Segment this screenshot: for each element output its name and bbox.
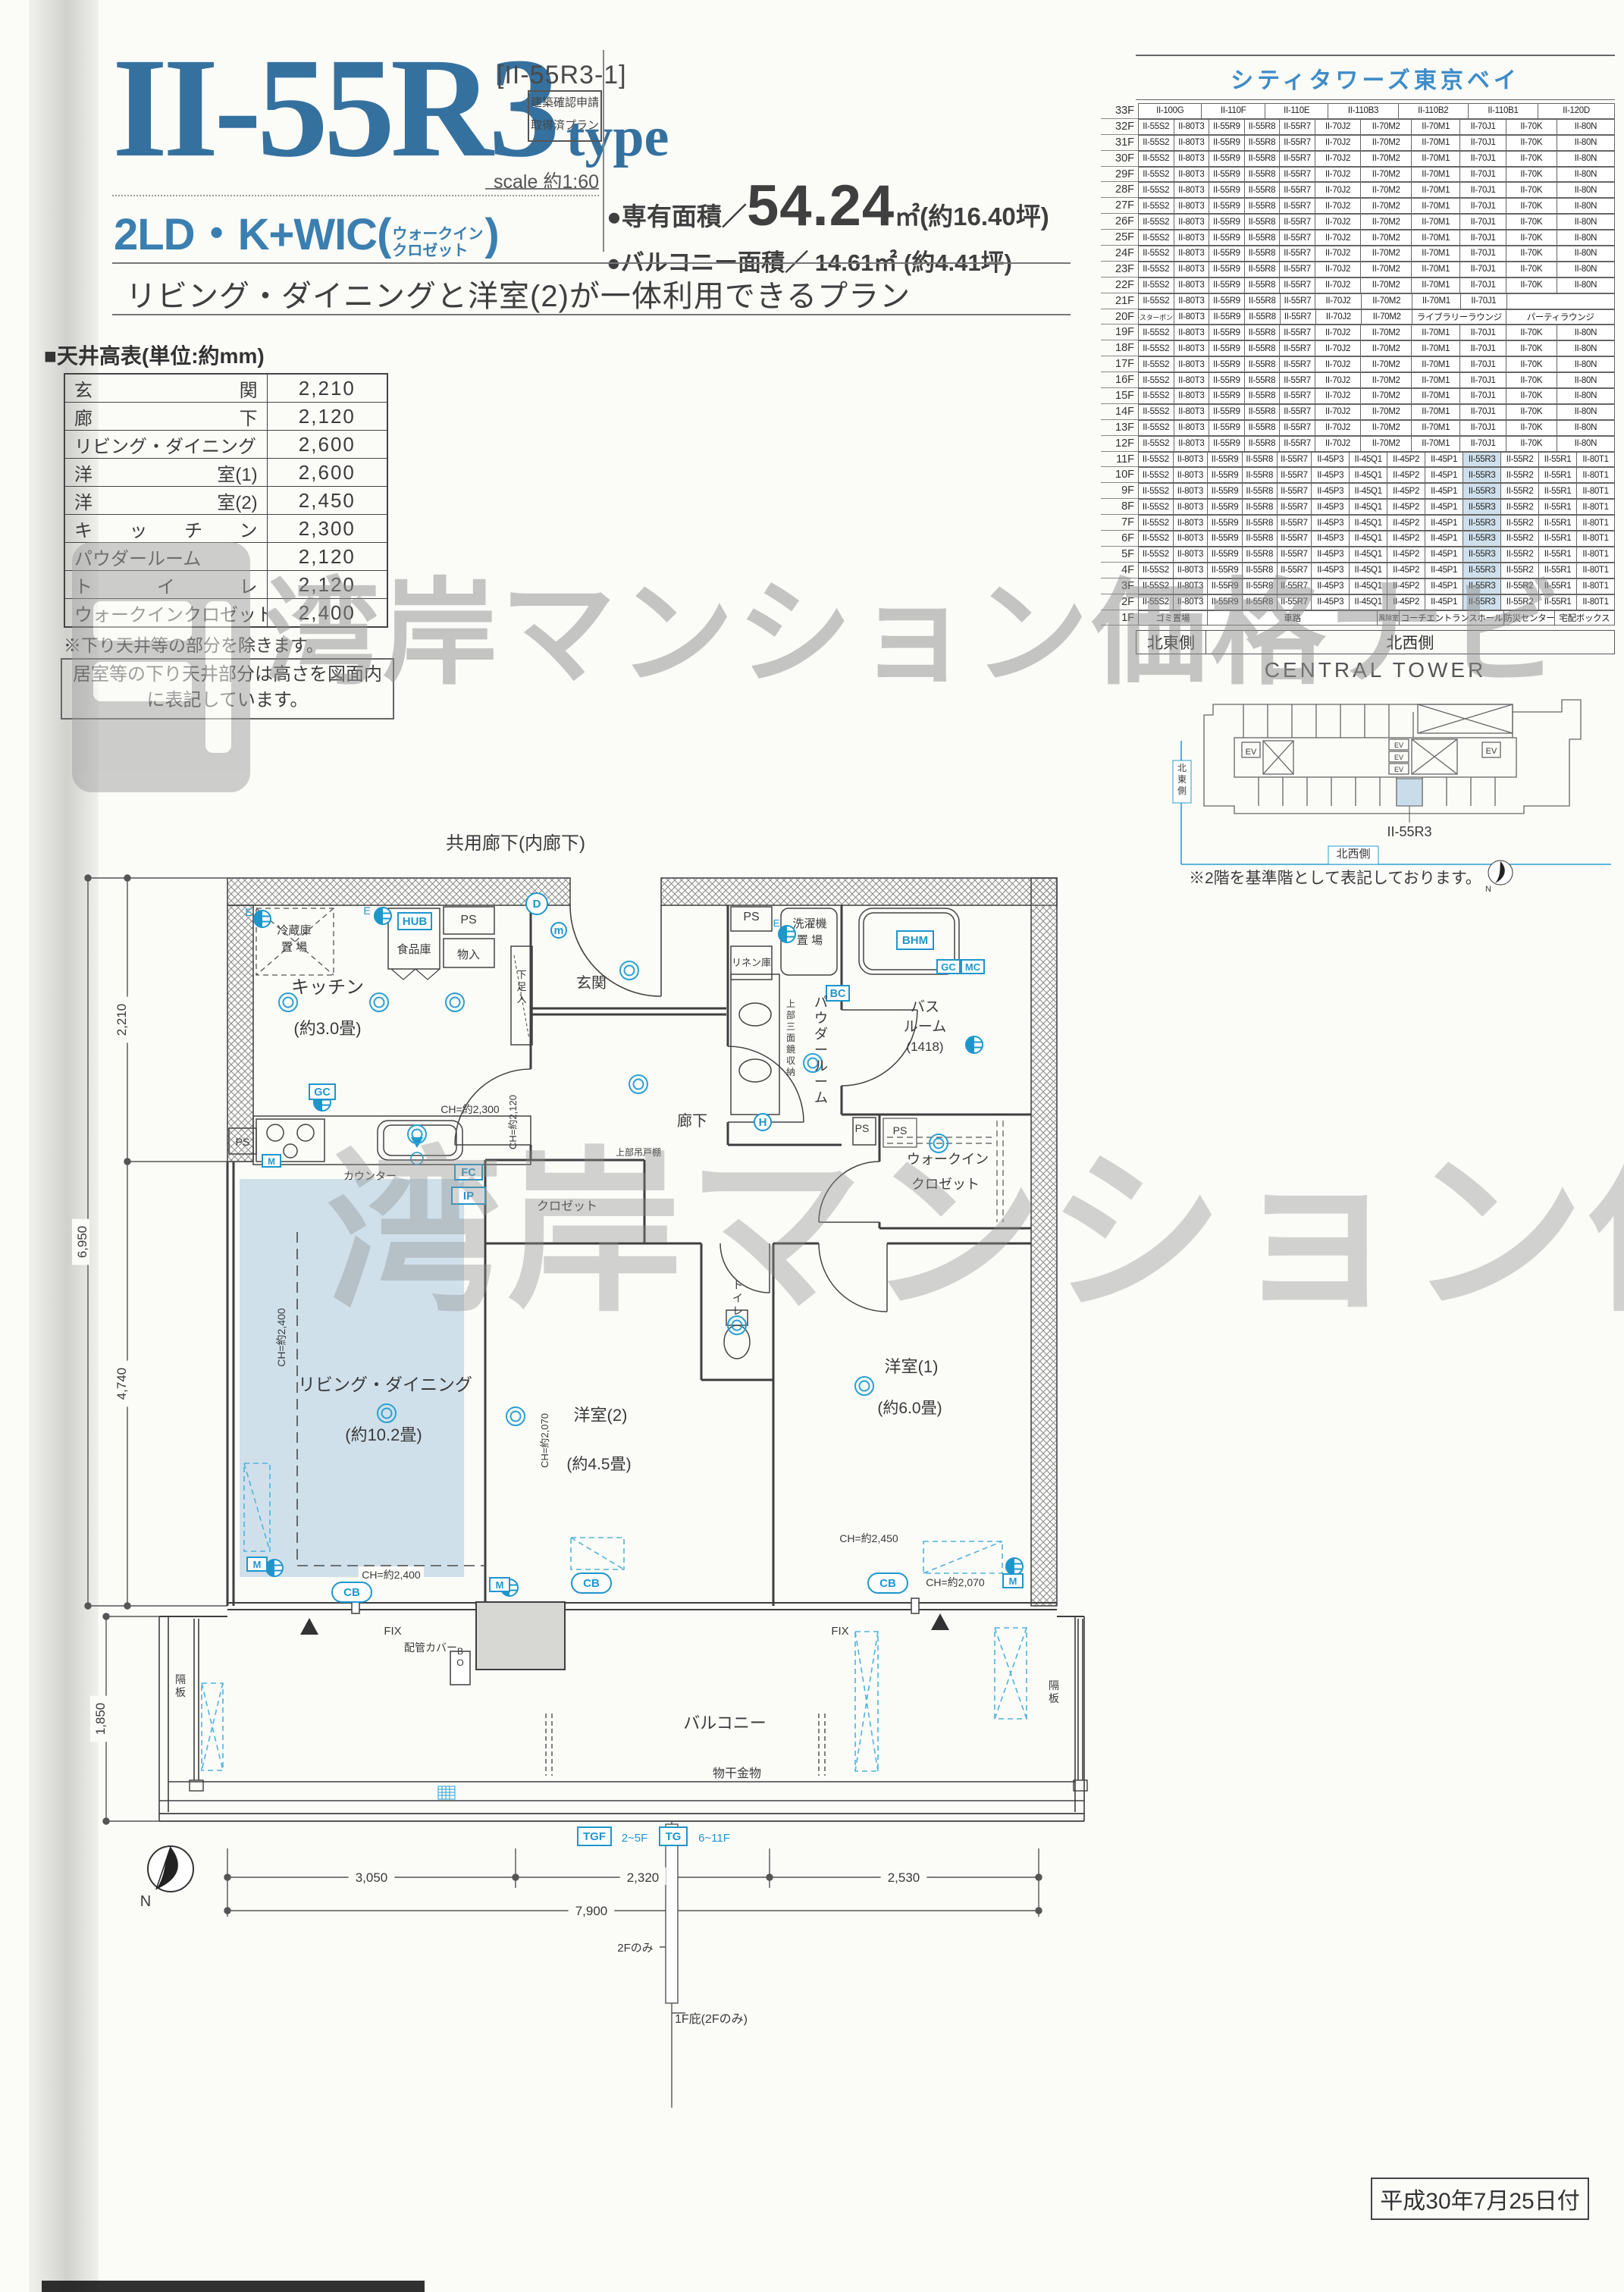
tower-cell: II-55R9 [1209,135,1245,151]
floor-label: 22F [1101,277,1138,293]
tower-cell: II-45P2 [1387,452,1425,468]
tower-cell: II-55R7 [1277,467,1312,483]
tower-cell: II-70J2 [1315,230,1361,246]
tower-cell: II-70J1 [1459,372,1506,388]
room-layout-label: 2LD・K+WIC(ウォークインクロゼット) [114,199,499,262]
tower-cell: II-70J1 [1459,214,1506,230]
tower-cell: II-55R9 [1209,309,1245,325]
tower-cell: II-80N [1557,119,1615,135]
tower-cell: II-80T1 [1576,515,1615,531]
tower-cell: II-70M2 [1360,388,1412,404]
tower-cell: II-55R1 [1538,499,1577,515]
tower-cell: II-70J2 [1315,356,1361,372]
tower-cell: II-55R7 [1280,293,1316,309]
tower-cell: II-110B1 [1468,103,1538,119]
plan-badge-bhm: BHM [902,934,928,947]
plan-label: 板 [1049,1692,1059,1704]
plan-label: 足 [516,981,526,992]
floor-label: 29F [1101,167,1138,183]
tower-cell: II-55R7 [1279,151,1315,167]
compass-icon [148,1846,193,1892]
tower-cell: II-70M2 [1360,151,1412,167]
tower-cell: II-55R8 [1244,293,1281,309]
plan-label: (1418) [906,1039,943,1054]
plan-label: リビング・ダイニング [298,1375,472,1394]
tower-cell: II-55R3 [1463,499,1501,515]
tower-cell: II-70M1 [1412,293,1461,309]
tower-row: 13FII-55S2II-80T3II-55R9II-55R8II-55R7II… [1101,420,1615,436]
tower-cell: II-55S2 [1138,182,1174,198]
tower-cell: II-55R7 [1279,388,1315,404]
tower-cell: II-45P3 [1311,452,1350,468]
tower-cell: II-55R7 [1279,214,1315,230]
tower-cell: II-55R9 [1207,452,1243,468]
floor-label: 20F [1101,309,1138,325]
tower-cell: II-55R7 [1277,499,1312,515]
tower-cell: II-55R8 [1244,325,1281,340]
plan-label: 側 [1177,785,1187,796]
dotted-divider [112,195,599,196]
scan-bottom-strip [42,2281,425,2292]
tower-cell: II-70M2 [1360,277,1412,293]
plan-label: バス [911,999,939,1015]
tower-cell: II-70J2 [1315,151,1361,167]
tower-cell: II-80T3 [1174,356,1210,372]
tower-cell: II-80N [1557,388,1615,404]
plan-label: (約10.2畳) [345,1425,422,1444]
tower-cell: II-55R9 [1209,340,1245,356]
tower-cell: II-55S2 [1138,246,1174,262]
floor-label: 15F [1101,388,1138,404]
tower-cell: II-45P2 [1387,467,1425,483]
tower-cell: II-70J1 [1459,325,1506,340]
building-key-plan: EVEVEVEVEVII-55R3北西側北東側※2階を基準階として表記しておりま… [1168,694,1622,898]
plan-badge-m: m [554,925,564,937]
plan-code: [II-55R3-1] [497,61,627,90]
plan-label: 北西側 [1336,848,1370,861]
tower-cell: II-45P3 [1311,515,1350,531]
ceiling-row: 玄関2,210 [65,375,387,402]
plan-label: パ [814,995,828,1010]
plan-label: CH=約2,450 [839,1532,898,1544]
tower-cell: II-70J2 [1315,135,1361,151]
area-label: ●専有面積／ [607,202,747,230]
tower-cell: II-80N [1557,246,1615,262]
plan-label: 冷蔵庫 [277,924,311,937]
scanned-floor-plan-page: II-55R3type [II-55R3-1] 建築確認申請 取得済プラン sc… [0,0,1624,2292]
plan-label: CH=約2,400 [362,1569,421,1581]
tower-cell: II-45P3 [1311,483,1350,499]
tower-cell: II-55R7 [1279,277,1315,293]
tower-cell: II-55R1 [1538,452,1577,468]
tower-cell: II-80N [1557,325,1615,340]
plan-badge-m: M [253,1559,262,1570]
tower-cell: II-80T3 [1174,293,1210,309]
highlighted-unit-location [1397,779,1422,806]
tower-row: 7FII-55S2II-80T3II-55R9II-55R8II-55R7II-… [1101,515,1615,531]
tower-cell [1506,293,1615,309]
tower-cell: II-70M2 [1360,198,1412,214]
tower-cell: II-70K [1506,230,1557,246]
tower-cell: II-55R7 [1280,309,1316,325]
tower-cell: II-55R7 [1279,167,1315,183]
tower-cell: II-55R9 [1209,230,1245,246]
tower-cell: II-70M1 [1411,388,1460,404]
tower-cell: II-55R8 [1244,372,1281,388]
tower-cell: II-55R8 [1244,420,1281,436]
tower-cell: II-80T3 [1174,388,1210,404]
tower-cell: II-55R8 [1242,515,1278,531]
tower-cell: II-70M1 [1411,356,1460,372]
plan-badge-tgf: TGF [583,1830,606,1843]
tower-cell: II-70M2 [1360,167,1412,183]
watermark-logo [72,542,250,792]
tower-cell: II-45P1 [1425,499,1463,515]
tower-row: 33FII-100GII-110FII-110EII-110B3II-110B2… [1101,103,1615,119]
floor-plan-drawing: DmHHUBGCGCMCBCBHMFCIPMMMMCBCBCBTGFTG 共用廊… [61,819,1168,2138]
plan-label: 東 [1177,774,1187,785]
tower-row: 15FII-55S2II-80T3II-55R9II-55R8II-55R7II… [1101,388,1615,404]
plan-label: 配管カバー [404,1641,457,1654]
tower-cell: II-55R9 [1207,467,1243,483]
tower-cell: II-55S2 [1138,135,1174,151]
tower-cell: II-70J2 [1315,214,1361,230]
floor-label: 7F [1101,515,1138,531]
tower-cell: II-100G [1138,103,1202,119]
tower-cell: II-70M1 [1411,372,1460,388]
tower-cell: II-70J2 [1315,309,1362,325]
tower-cell: II-70K [1506,388,1557,404]
plan-label: 3,050 [356,1870,388,1885]
tower-cell: II-45Q1 [1349,499,1387,515]
tower-cell: II-80T1 [1576,452,1615,468]
tower-cell: II-70M2 [1360,325,1412,340]
tower-cell: II-80T3 [1173,452,1209,468]
tower-cell: II-80T1 [1576,531,1615,547]
tower-cell: II-55R8 [1244,277,1281,293]
tower-cell: II-80N [1557,230,1615,246]
ceiling-table-title: ■天井高表(単位:約mm) [44,340,265,370]
floor-label: 12F [1101,436,1138,452]
tower-cell: II-55R7 [1279,340,1315,356]
area-unit: ㎡(約16.40坪) [895,202,1049,230]
tower-cell: II-55S2 [1138,214,1174,230]
tower-cell: II-80N [1557,135,1615,151]
tower-cell: II-80T3 [1174,436,1210,452]
tower-cell: II-55R8 [1244,404,1281,420]
tower-cell: II-55R7 [1279,182,1315,198]
tower-cell: II-80T3 [1174,420,1210,436]
ceiling-row: リビング・ダイニング2,600 [65,430,387,458]
tower-cell: II-80T3 [1173,483,1209,499]
tower-cell: II-80T3 [1174,167,1210,183]
tower-cell: II-70K [1506,151,1557,167]
tower-cell: II-70M2 [1360,372,1412,388]
tower-cell: II-45P1 [1425,515,1463,531]
tower-row: 23FII-55S2II-80T3II-55R9II-55R8II-55R7II… [1101,262,1615,277]
plan-label: 2,320 [627,1870,660,1885]
tower-cell: II-55S2 [1138,467,1174,483]
tower-cell: II-70M1 [1411,119,1460,135]
tower-cell: II-55R7 [1277,452,1312,468]
tower-cell: II-70J2 [1315,246,1361,262]
tower-cell: II-55R8 [1244,356,1281,372]
plan-label: バルコニー [683,1714,767,1732]
tower-cell: II-45P2 [1387,515,1425,531]
floor-label: 19F [1101,325,1138,340]
plan-label: 隔 [1049,1679,1059,1692]
plan-label: EV [1394,766,1403,773]
tower-cell: II-70J1 [1459,262,1506,277]
tower-cell: II-70M2 [1361,309,1412,325]
tower-cell: II-70J1 [1459,230,1506,246]
tower-cell: II-80T3 [1174,246,1210,262]
tower-cell: II-70M1 [1411,182,1460,198]
tower-cell: II-55R7 [1279,436,1315,452]
tower-cell: II-55R8 [1244,388,1281,404]
tower-cell: II-70M1 [1411,340,1460,356]
plan-badge-gc: GC [941,961,955,973]
tower-cell: II-45Q1 [1349,467,1387,483]
tower-cell: II-70J1 [1460,293,1507,309]
tower-row: 12FII-55S2II-80T3II-55R9II-55R8II-55R7II… [1101,436,1615,452]
floor-label: 26F [1101,214,1138,230]
plan-label: ル [814,1058,828,1074]
plan-label: (約3.0畳) [293,1019,361,1038]
tower-cell: II-55R2 [1500,483,1539,499]
tower-cell: II-55R8 [1242,452,1278,468]
plan-label: 北 [1177,763,1187,773]
tower-cell: II-80N [1557,277,1615,293]
tower-row: 22FII-55S2II-80T3II-55R9II-55R8II-55R7II… [1101,277,1615,293]
tower-cell: II-55R7 [1279,198,1315,214]
plan-badge-cb: CB [343,1586,360,1599]
tower-cell: II-55R9 [1209,151,1245,167]
tower-cell: II-55R9 [1209,388,1245,404]
tower-cell: II-70K [1506,262,1557,277]
tower-cell: II-70J2 [1315,262,1361,277]
tower-cell: II-55S2 [1138,230,1174,246]
tower-cell: II-80N [1557,404,1615,420]
tower-row: 28FII-55S2II-80T3II-55R9II-55R8II-55R7II… [1101,182,1615,198]
tower-cell: II-70K [1506,404,1557,420]
tower-cell: II-80N [1557,420,1615,436]
tower-cell: II-70J1 [1459,404,1506,420]
tower-cell: II-70M1 [1411,277,1460,293]
tower-cell: II-55R7 [1279,119,1315,135]
tower-row: 32FII-55S2II-80T3II-55R9II-55R8II-55R7II… [1101,119,1615,135]
plan-label: ※2階を基準階として表記しております。 [1189,870,1481,887]
tower-cell: II-55R8 [1242,483,1278,499]
plan-label: FIX [384,1625,401,1638]
plan-label: 玄関 [576,974,607,992]
tower-row: 18FII-55S2II-80T3II-55R9II-55R8II-55R7II… [1101,340,1615,356]
tower-cell: II-55R3 [1463,483,1501,499]
tower-cell: II-55R2 [1500,515,1539,531]
tower-cell: II-55R9 [1209,119,1245,135]
plan-label: 納 [786,1067,795,1077]
plan-label: 三 [786,1021,795,1032]
tower-cell: II-70M1 [1411,167,1460,183]
date-stamp: 平成30年7月25日付 [1371,2178,1589,2220]
tower-cell: II-70K [1506,119,1557,135]
tower-cell: II-55R8 [1244,309,1281,325]
tower-cell: II-70M1 [1411,198,1460,214]
tower-cell: II-55R3 [1463,452,1501,468]
tower-row: 17FII-55S2II-80T3II-55R9II-55R8II-55R7II… [1101,356,1615,372]
plan-label: (約4.5畳) [566,1456,631,1473]
plan-badge-tg: TG [666,1830,682,1843]
tower-cell: II-70J2 [1315,325,1361,340]
tower-cell: II-55R8 [1244,436,1281,452]
tower-cell: II-70M2 [1360,436,1412,452]
plan-label: 7,900 [575,1904,608,1918]
tower-cell: II-55S2 [1138,262,1174,277]
tower-cell: II-70M2 [1360,119,1412,135]
tower-cell: II-70J1 [1459,119,1506,135]
plan-badge-m: M [268,1158,275,1167]
tower-cell: II-80N [1557,214,1615,230]
tower-cell: II-70J1 [1459,356,1506,372]
tower-cell: II-55R7 [1279,372,1315,388]
unit-type-name: II-55R3 [112,28,556,187]
plan-label: 2,530 [888,1870,920,1885]
plan-subtitle: リビング・ダイニングと洋室(2)が一体利用できるプラン [126,271,911,315]
tower-cell: II-70M2 [1360,230,1412,246]
watermark-text: 湾岸マンション価格ナビ [326,1090,1624,1345]
plan-label: EV [1246,748,1257,757]
ceiling-row: 廊下2,120 [65,402,387,430]
tower-cell: II-80T3 [1174,262,1210,277]
tower-cell: ライブラリーラウンジ [1412,309,1506,325]
tower-cell: II-55S2 [1138,277,1174,293]
ceiling-row: 洋室(2)2,450 [65,486,387,514]
tower-cell: II-55R8 [1244,135,1281,151]
tower-cell: II-80T1 [1576,547,1615,563]
plan-label: 上 [786,999,795,1009]
tower-cell: II-55R1 [1538,515,1577,531]
plan-label: ルーム [904,1019,946,1035]
tower-cell: II-55R9 [1209,182,1245,198]
plan-label: 洋室(1) [885,1357,939,1376]
floor-label: 8F [1101,499,1138,515]
tower-cell: II-55R7 [1279,135,1315,151]
tower-cell: II-110F [1201,103,1265,119]
tower-cell: II-55S2 [1138,293,1174,309]
tower-cell: II-70J2 [1315,436,1361,452]
tower-cell: II-55S2 [1138,436,1174,452]
tower-cell: II-70J1 [1459,151,1506,167]
floor-label: 14F [1101,404,1138,420]
tower-cell: II-80T3 [1174,151,1210,167]
tower-row: 19FII-55S2II-80T3II-55R9II-55R8II-55R7II… [1101,325,1615,340]
plan-label: O [456,1657,463,1668]
tower-cell: II-55R7 [1279,356,1315,372]
plan-label: 下 [516,969,526,980]
watermark-text: 湾岸マンション価格ナビ [264,540,1565,707]
tower-cell: II-55S2 [1138,388,1174,404]
plan-label: II-55R3 [1387,824,1431,839]
plan-label: ー [814,1043,828,1058]
tower-cell: II-70J2 [1315,119,1361,135]
tower-cell: II-80T1 [1576,578,1615,594]
tower-cell: II-70M2 [1360,262,1412,277]
tower-cell: II-70J1 [1459,277,1506,293]
plan-label: ウ [814,1011,828,1026]
tower-cell: II-70K [1506,198,1557,214]
plan-label: 2,210 [114,1004,129,1036]
tower-cell: II-55R1 [1538,467,1577,483]
tower-cell: II-55R7 [1279,246,1315,262]
tower-cell: II-80N [1557,340,1615,356]
tower-row: 14FII-55S2II-80T3II-55R9II-55R8II-55R7II… [1101,404,1615,420]
plan-label: B [457,1646,463,1657]
tower-cell: II-55S2 [1138,499,1174,515]
tower-cell: II-45P1 [1425,467,1463,483]
tower-cell: II-80T1 [1576,483,1615,499]
tower-row: 27FII-55S2II-80T3II-55R9II-55R8II-55R7II… [1101,198,1615,214]
tower-cell: II-80N [1557,372,1615,388]
tower-cell: II-70M2 [1360,182,1412,198]
tower-cell: II-55R9 [1209,214,1245,230]
pipe-cover-box [476,1602,565,1670]
tower-cell: II-70M1 [1411,214,1460,230]
tower-cell: II-55S2 [1138,325,1174,340]
tower-cell: II-80T3 [1174,135,1210,151]
tower-cell: パーティラウンジ [1506,309,1615,325]
tower-cell: II-70J2 [1315,182,1361,198]
plan-label: 共用廊下(内廊下) [446,833,585,854]
tower-cell: II-70M2 [1360,214,1412,230]
tower-cell: II-55R9 [1207,499,1243,515]
tower-cell: II-70M1 [1411,246,1460,262]
tower-cell: II-80T1 [1576,563,1615,578]
tower-cell: II-70M1 [1411,151,1460,167]
tower-cell: II-70M2 [1360,135,1412,151]
tower-cell: II-70J1 [1459,246,1506,262]
tower-cell: II-55R9 [1209,277,1245,293]
divider [485,188,599,190]
divider [112,262,1071,264]
tower-cell: II-80N [1557,198,1615,214]
tower-row: 31FII-55S2II-80T3II-55R9II-55R8II-55R7II… [1101,135,1615,151]
tower-cell: II-80T3 [1174,119,1210,135]
tower-cell: II-55S2 [1138,420,1174,436]
plan-label: 6~11F [698,1832,730,1845]
plan-label: リネン庫 [732,957,771,968]
tower-cell: II-80N [1557,262,1615,277]
plan-label: N [140,1893,151,1910]
plan-label: 鏡 [786,1043,795,1055]
floor-label: 10F [1101,467,1138,483]
plan-label: E [245,906,252,918]
plan-label: CH=約2,070 [539,1413,550,1468]
tower-cell: II-70J1 [1459,436,1506,452]
tower-cell: II-55R9 [1209,372,1245,388]
tower-cell: II-80T3 [1174,214,1210,230]
tower-cell: II-110E [1265,103,1328,119]
ceiling-row: キッチン2,300 [65,514,387,542]
tower-table-title: シティタワーズ東京ベイ [1136,56,1615,99]
plan-badge-cb: CB [583,1577,600,1590]
tower-cell: II-55R8 [1244,151,1281,167]
tower-cell: II-70K [1506,214,1557,230]
tower-row: 16FII-55S2II-80T3II-55R9II-55R8II-55R7II… [1101,372,1615,388]
tower-cell: II-55S2 [1138,151,1174,167]
tower-cell: II-55R8 [1242,467,1278,483]
tower-cell: II-80T3 [1174,404,1210,420]
tower-cell: II-70M2 [1360,420,1412,436]
